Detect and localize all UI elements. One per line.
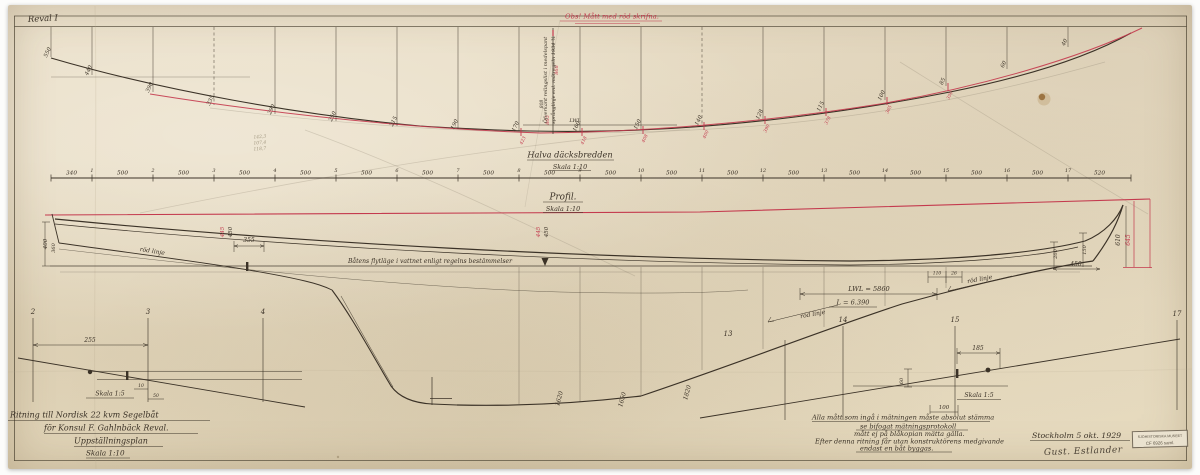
ruler-station-number: 4: [272, 168, 276, 174]
ruler-first-segment-label: 340: [66, 171, 77, 177]
annotation-texts: röd linjeröd linjeröd linje4454504454503…: [30, 65, 1182, 411]
detail-right-scale: Skala 1:5: [964, 392, 993, 399]
station-ruler: 3405005005005005005005005005005005005005…: [51, 168, 1131, 182]
annotation-text: röd linje: [800, 309, 827, 320]
deck-curve-value: 440: [84, 64, 95, 77]
rotated-note-line1: Öfverkant relingslist i medelspant: [542, 36, 549, 123]
ruler-segment-label: 500: [727, 171, 738, 177]
rotated-note-line2: språnglinje enl. mätregeln 1934 ¾: [550, 36, 557, 124]
annotation-text: 142,3: [253, 133, 266, 140]
annotation-text: 14: [839, 316, 848, 324]
deck-curve-value: 550: [43, 46, 53, 59]
ruler-station-number: 17: [1065, 168, 1072, 174]
annotation-text: 13: [724, 330, 733, 338]
ruler-station-number: 12: [760, 168, 766, 174]
technical-drawing-svg: 3405005005005005005005005005005005005005…: [0, 0, 1200, 475]
annotation-text: 17: [1173, 310, 1182, 318]
annotation-text: 50: [153, 393, 159, 399]
ruler-station-number: 5: [334, 168, 337, 174]
annotation-text: 445: [536, 226, 542, 238]
deck-curve-red-value: 423: [518, 135, 528, 146]
deck-curve-red-value: 365: [885, 104, 894, 114]
deck-curve-red-value: 400: [701, 129, 711, 140]
ruler-segment-label: 500: [849, 171, 860, 177]
deck-curve-value: 115: [816, 100, 826, 113]
ruler-station-number: 15: [943, 168, 949, 174]
ruler-station-number: 14: [882, 168, 888, 174]
annotation-text: 118,7: [253, 145, 266, 152]
detail-views: [18, 318, 1180, 420]
annotation-text: LWL: [568, 118, 581, 124]
ruler-station-number: 2: [150, 168, 154, 174]
annotation-text: 360: [51, 242, 57, 252]
profile-scale: Skala 1:10: [546, 205, 580, 213]
dimension-lines: [33, 206, 1126, 414]
annotation-text: 150: [1082, 244, 1088, 254]
ruler-last-segment-label: 520: [1094, 171, 1105, 177]
annotation-text: 445: [220, 226, 226, 238]
deck-curve-value: 128: [755, 108, 765, 121]
scanned-drawing-page: 3405005005005005005005005005005005005005…: [0, 0, 1200, 475]
annotation-text: 26: [950, 271, 957, 277]
deck-curve-value: 100: [877, 89, 887, 102]
ruler-segment-label: 500: [178, 171, 189, 177]
annotation-text: 645: [1125, 234, 1132, 246]
title-block-line2: för Konsul F. Gahlnbäck Reval.: [43, 424, 169, 433]
ruler-station-number: 6: [395, 168, 399, 174]
ruler-station-number: 13: [821, 168, 827, 174]
ruler-segment-label: 500: [361, 171, 372, 177]
plan-station-lines: [51, 27, 1068, 131]
paper-stains: [337, 93, 1051, 459]
frame-lines: [14, 16, 1187, 461]
pencil-construction-lines: [8, 6, 1192, 469]
ruler-segment-label: 500: [788, 171, 799, 177]
signature-place-date: Stockholm 5 okt. 1929: [1032, 431, 1121, 440]
half-breadth-plan-curves: [51, 28, 1142, 134]
annotation-text: 200: [1053, 248, 1059, 259]
annotation-text: 610: [1115, 234, 1122, 246]
ruler-segment-label: 500: [971, 171, 982, 177]
ruler-segment-label: 500: [544, 171, 555, 177]
ruler-segment-label: 500: [117, 171, 128, 177]
deck-curve-value: 140: [694, 114, 704, 127]
title-block-line3: Uppställningsplan: [74, 437, 148, 446]
deck-outline-curve: [51, 33, 1131, 131]
detail-left-scale: Skala 1:5: [95, 391, 124, 398]
profile-red-lines: [45, 21, 1152, 268]
title-block-line1: Ritning till Nordisk 22 kvm Segelbåt: [9, 411, 159, 420]
ruler-segment-label: 500: [1032, 171, 1043, 177]
ruler-segment-label: 500: [483, 171, 494, 177]
ruler-segment-label: 500: [605, 171, 616, 177]
notes-line5: endast en båt byggas.: [860, 444, 933, 453]
museum-stamp: SJÖHISTORISKA MUSEET CF 6926 saml.: [1132, 430, 1187, 447]
ruler-station-number: 1: [90, 168, 93, 174]
deck-curve-red-value: 408: [640, 133, 650, 144]
annotation-text: 1620: [554, 390, 565, 407]
annotation-text: 355: [243, 237, 255, 244]
ruler-station-number: 8: [517, 168, 520, 174]
deck-curve-red-value: 378: [824, 115, 833, 125]
ruler-segment-label: 500: [239, 171, 250, 177]
lwl-dimension: LWL = 5860: [847, 285, 889, 293]
plan-scale: Skala 1:10: [553, 163, 587, 171]
stamp-line2: CF 6926 saml.: [1146, 440, 1175, 446]
deck-curve-red-value: 418: [579, 135, 589, 146]
ruler-station-number: 11: [699, 168, 705, 174]
annotation-text: 10: [138, 383, 144, 389]
ruler-segment-label: 500: [300, 171, 311, 177]
annotation-text: 100: [939, 405, 950, 411]
ruler-station-number: 3: [212, 168, 215, 174]
ruler-station-number: 10: [638, 168, 645, 174]
annotation-text: 2: [30, 308, 36, 316]
annotation-text: 107,4: [253, 139, 266, 146]
annotation-text: 1650: [617, 391, 628, 408]
plan-title: Halva däcksbredden: [526, 150, 612, 160]
title-block-line4: Skala 1:10: [86, 449, 125, 458]
red-measurement-note: Obs! Mått med röd skrifna.: [565, 12, 659, 21]
annotation-text: 400: [43, 238, 49, 250]
annotation-text: 15: [951, 316, 960, 324]
annotation-text: 255: [83, 337, 96, 344]
ruler-station-number: 16: [1004, 168, 1011, 174]
ruler-station-number: 7: [456, 168, 460, 174]
notes-line1: Alla mått som ingå i mätningen måste abs…: [811, 413, 994, 422]
ruler-segment-label: 500: [910, 171, 921, 177]
signature-name: Gust. Estlander: [1044, 445, 1123, 458]
length-dimension: L = 6.390: [836, 299, 870, 307]
annotation-text: 4: [260, 308, 265, 316]
annotation-text: 450: [228, 226, 234, 238]
waterline-note: Båtens flytläge i vattnet enligt regelns…: [347, 258, 513, 265]
annotation-text: 1820: [682, 384, 693, 401]
deck-curve-value: 150: [633, 118, 643, 131]
annotation-text: 3: [146, 308, 151, 316]
annotation-text: 185: [972, 345, 984, 352]
corner-mark: Reval I: [27, 13, 59, 25]
annotation-text: 110: [933, 271, 942, 277]
ruler-segment-label: 500: [666, 171, 677, 177]
ruler-segment-label: 500: [422, 171, 433, 177]
deck-outline-red-curve: [150, 28, 1142, 133]
annotation-text: 450: [1069, 261, 1082, 268]
annotation-text: 450: [544, 226, 550, 238]
annotation-text: 60: [899, 377, 905, 384]
profile-title: Profil.: [549, 193, 577, 203]
deck-curve-value: 290: [267, 103, 278, 116]
